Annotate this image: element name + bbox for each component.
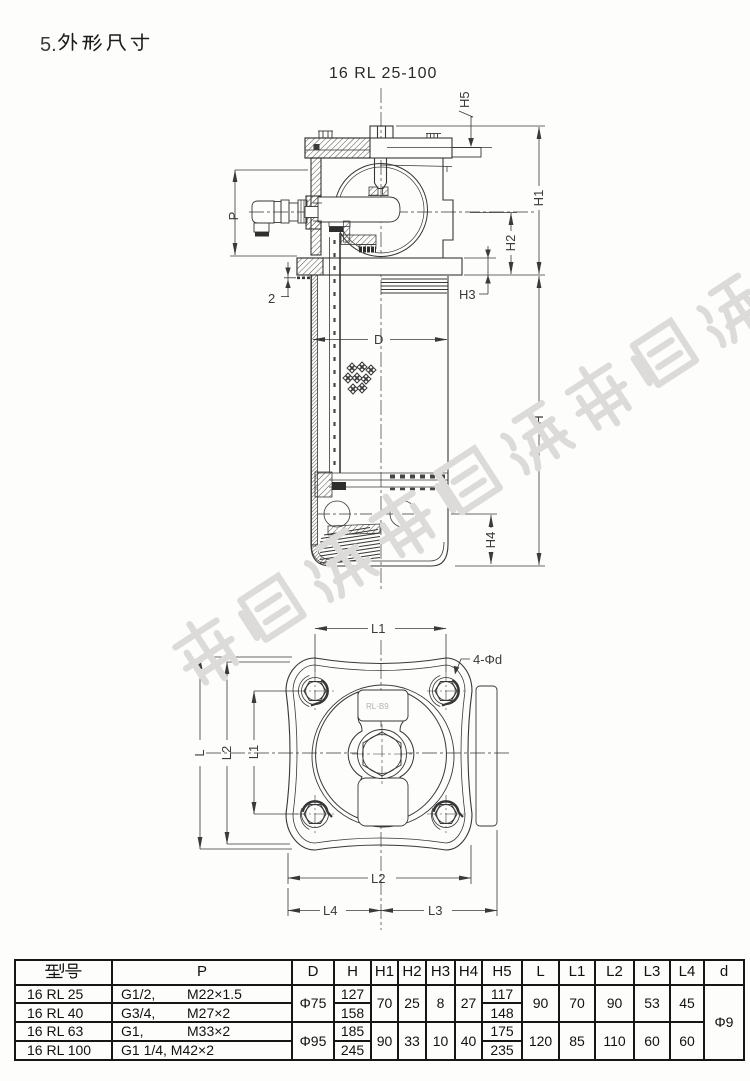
svg-text:L: L <box>192 749 207 756</box>
svg-text:H1: H1 <box>531 190 546 207</box>
svg-text:H3: H3 <box>459 287 476 302</box>
svg-text:L2: L2 <box>219 746 234 760</box>
svg-text:H2: H2 <box>503 235 518 252</box>
svg-text:L4: L4 <box>323 903 337 918</box>
svg-text:D: D <box>374 332 383 347</box>
svg-text:L1: L1 <box>246 745 261 759</box>
svg-text:H5: H5 <box>457 91 472 108</box>
svg-text:L2: L2 <box>371 871 385 886</box>
svg-text:4-Φd: 4-Φd <box>473 652 502 667</box>
svg-text:RL·B9: RL·B9 <box>366 702 389 711</box>
svg-text:P: P <box>226 212 241 221</box>
svg-text:L3: L3 <box>428 903 442 918</box>
svg-text:H4: H4 <box>483 532 498 549</box>
svg-text:L1: L1 <box>371 621 385 636</box>
svg-text:2: 2 <box>268 291 275 306</box>
